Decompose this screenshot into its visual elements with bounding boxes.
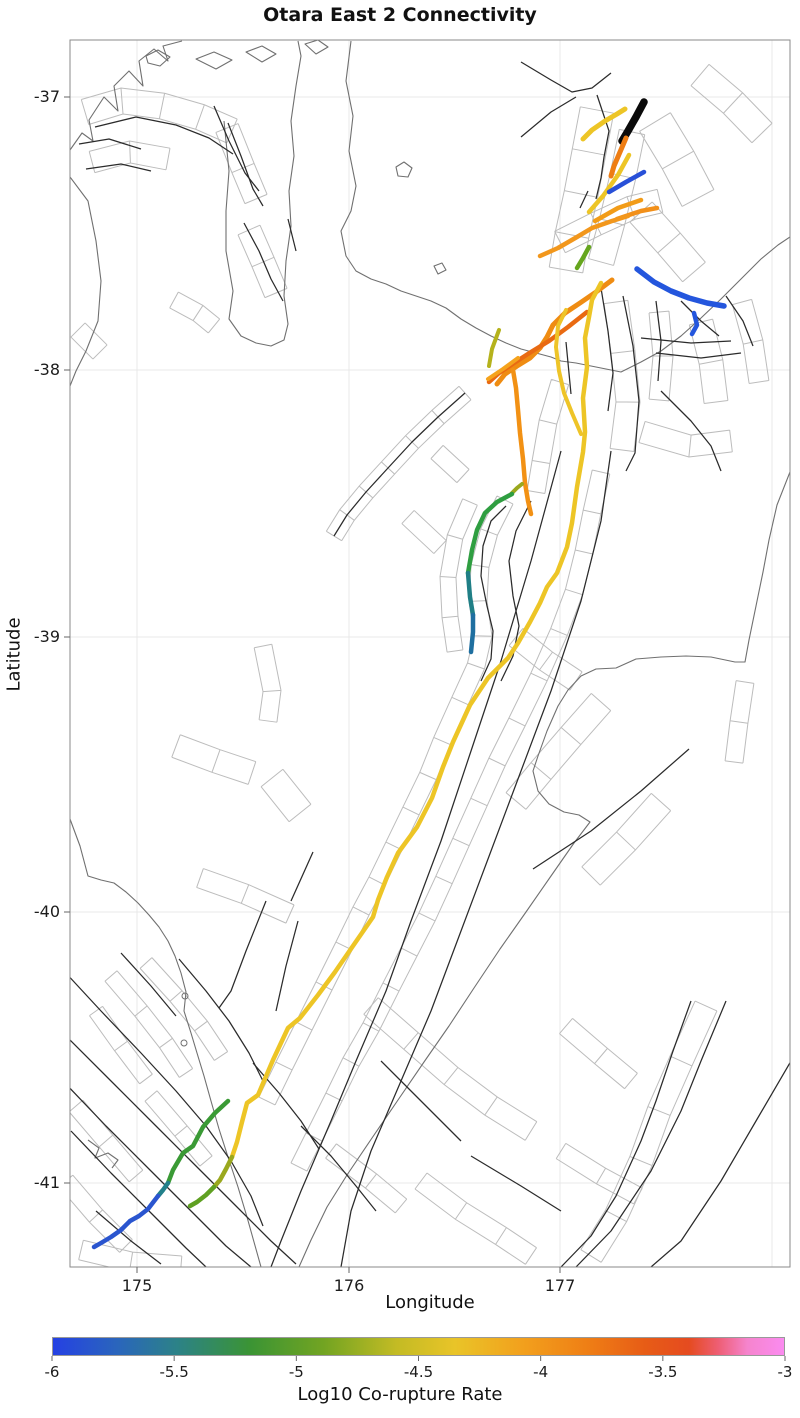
fault-section-chain <box>582 793 671 885</box>
colorbar-tick-label: -3 <box>755 1363 800 1381</box>
colorbar-label: Log10 Co-rupture Rate <box>100 1384 700 1405</box>
lake-outline <box>181 1040 187 1046</box>
rupture <box>540 216 628 256</box>
rupture <box>468 573 473 615</box>
colorbar-tick-label: -5 <box>266 1363 326 1381</box>
y-axis-label: Latitude <box>4 455 25 855</box>
fault-trace <box>521 97 576 137</box>
colorbar-tick-label: -4 <box>511 1363 571 1381</box>
fault-trace <box>66 1036 296 1264</box>
colorbar-tickmarks <box>52 1356 785 1361</box>
fault-section-chain <box>639 421 732 457</box>
island-outline <box>305 40 328 54</box>
coastline <box>224 41 301 346</box>
fault-trace <box>533 749 689 869</box>
fault-section-chain <box>415 1173 537 1264</box>
fault-section-chain <box>71 323 107 359</box>
coastline <box>70 177 101 386</box>
fault-section-chain <box>506 693 611 809</box>
fault-section-chain <box>291 470 610 1171</box>
fault-trace <box>291 852 313 901</box>
fault-section-chain <box>197 869 294 924</box>
fault-section-chain <box>604 300 640 451</box>
fault-trace <box>656 301 661 381</box>
map-content <box>59 40 791 1276</box>
fault-trace <box>601 288 613 411</box>
fault-section-chain <box>89 1006 152 1083</box>
figure: Otara East 2 Connectivity -37-38-39-40-4… <box>0 0 800 1418</box>
fault-trace <box>341 451 611 1267</box>
colorbar-tick-label: -4.5 <box>389 1363 449 1381</box>
rupture <box>94 1196 158 1247</box>
y-tick-label: -41 <box>8 1173 60 1192</box>
fault-section-chain <box>527 379 568 493</box>
rupture <box>489 312 587 382</box>
x-axis-label: Longitude <box>230 1292 630 1313</box>
fault-trace <box>276 921 298 1011</box>
fault-section-chain <box>172 735 256 785</box>
rupture <box>513 370 531 514</box>
fault-trace <box>79 139 141 149</box>
chart-title: Otara East 2 Connectivity <box>0 4 800 26</box>
fault-trace <box>219 901 266 1008</box>
fault-trace <box>228 123 263 206</box>
fault-section-chain <box>261 769 311 821</box>
coastline <box>341 41 790 372</box>
fault-trace <box>179 959 263 1081</box>
main-yellow-route <box>232 283 601 1157</box>
map-canvas <box>0 0 800 1418</box>
rupture <box>471 615 473 652</box>
fault-section-chain <box>254 644 281 722</box>
fault-section-chain <box>691 64 772 142</box>
fault-section-chain <box>431 445 469 482</box>
y-tick-label: -38 <box>8 360 60 379</box>
fault-section-chain <box>216 124 267 204</box>
island-outline <box>396 162 412 177</box>
fault-section-chain <box>170 292 220 333</box>
island-outline <box>434 263 446 274</box>
island-outline <box>246 46 276 62</box>
colorbar-tick-label: -6 <box>22 1363 82 1381</box>
colorbar-tick-label: -5.5 <box>144 1363 204 1381</box>
fault-trace <box>651 1061 791 1267</box>
y-tick-label: -40 <box>8 902 60 921</box>
fault-trace <box>501 501 531 681</box>
fault-trace <box>726 296 753 346</box>
fault-trace <box>521 62 611 92</box>
plot-border <box>70 40 790 1267</box>
rupture <box>158 1183 168 1196</box>
fault-trace <box>95 117 233 154</box>
fault-section-chain <box>402 510 446 553</box>
fault-section-chain <box>581 1001 717 1262</box>
fault-trace <box>96 1211 161 1264</box>
x-tick-label: 175 <box>107 1276 167 1295</box>
fault-section-chain <box>640 113 714 207</box>
fault-section-chain <box>559 1018 637 1088</box>
fault-trace <box>271 451 561 1267</box>
fault-section-chain <box>725 681 754 763</box>
fault-section-chain <box>81 88 237 143</box>
coastline <box>70 41 182 150</box>
fault-section-chain <box>326 1144 407 1213</box>
fault-section-chain <box>326 386 471 540</box>
rupture <box>692 313 697 334</box>
rupture <box>190 1187 214 1206</box>
colorbar-gradient <box>52 1337 785 1356</box>
rupture <box>577 247 589 268</box>
colorbar-tick-label: -3.5 <box>633 1363 693 1381</box>
fault-section-chain <box>556 1143 642 1204</box>
y-tick-label: -37 <box>8 87 60 106</box>
fault-trace <box>561 1001 691 1267</box>
island-outline <box>196 52 232 69</box>
fault-section-chain <box>238 225 287 297</box>
rupture <box>637 269 724 306</box>
fault-trace <box>334 393 465 536</box>
fault-trace <box>253 1063 319 1149</box>
